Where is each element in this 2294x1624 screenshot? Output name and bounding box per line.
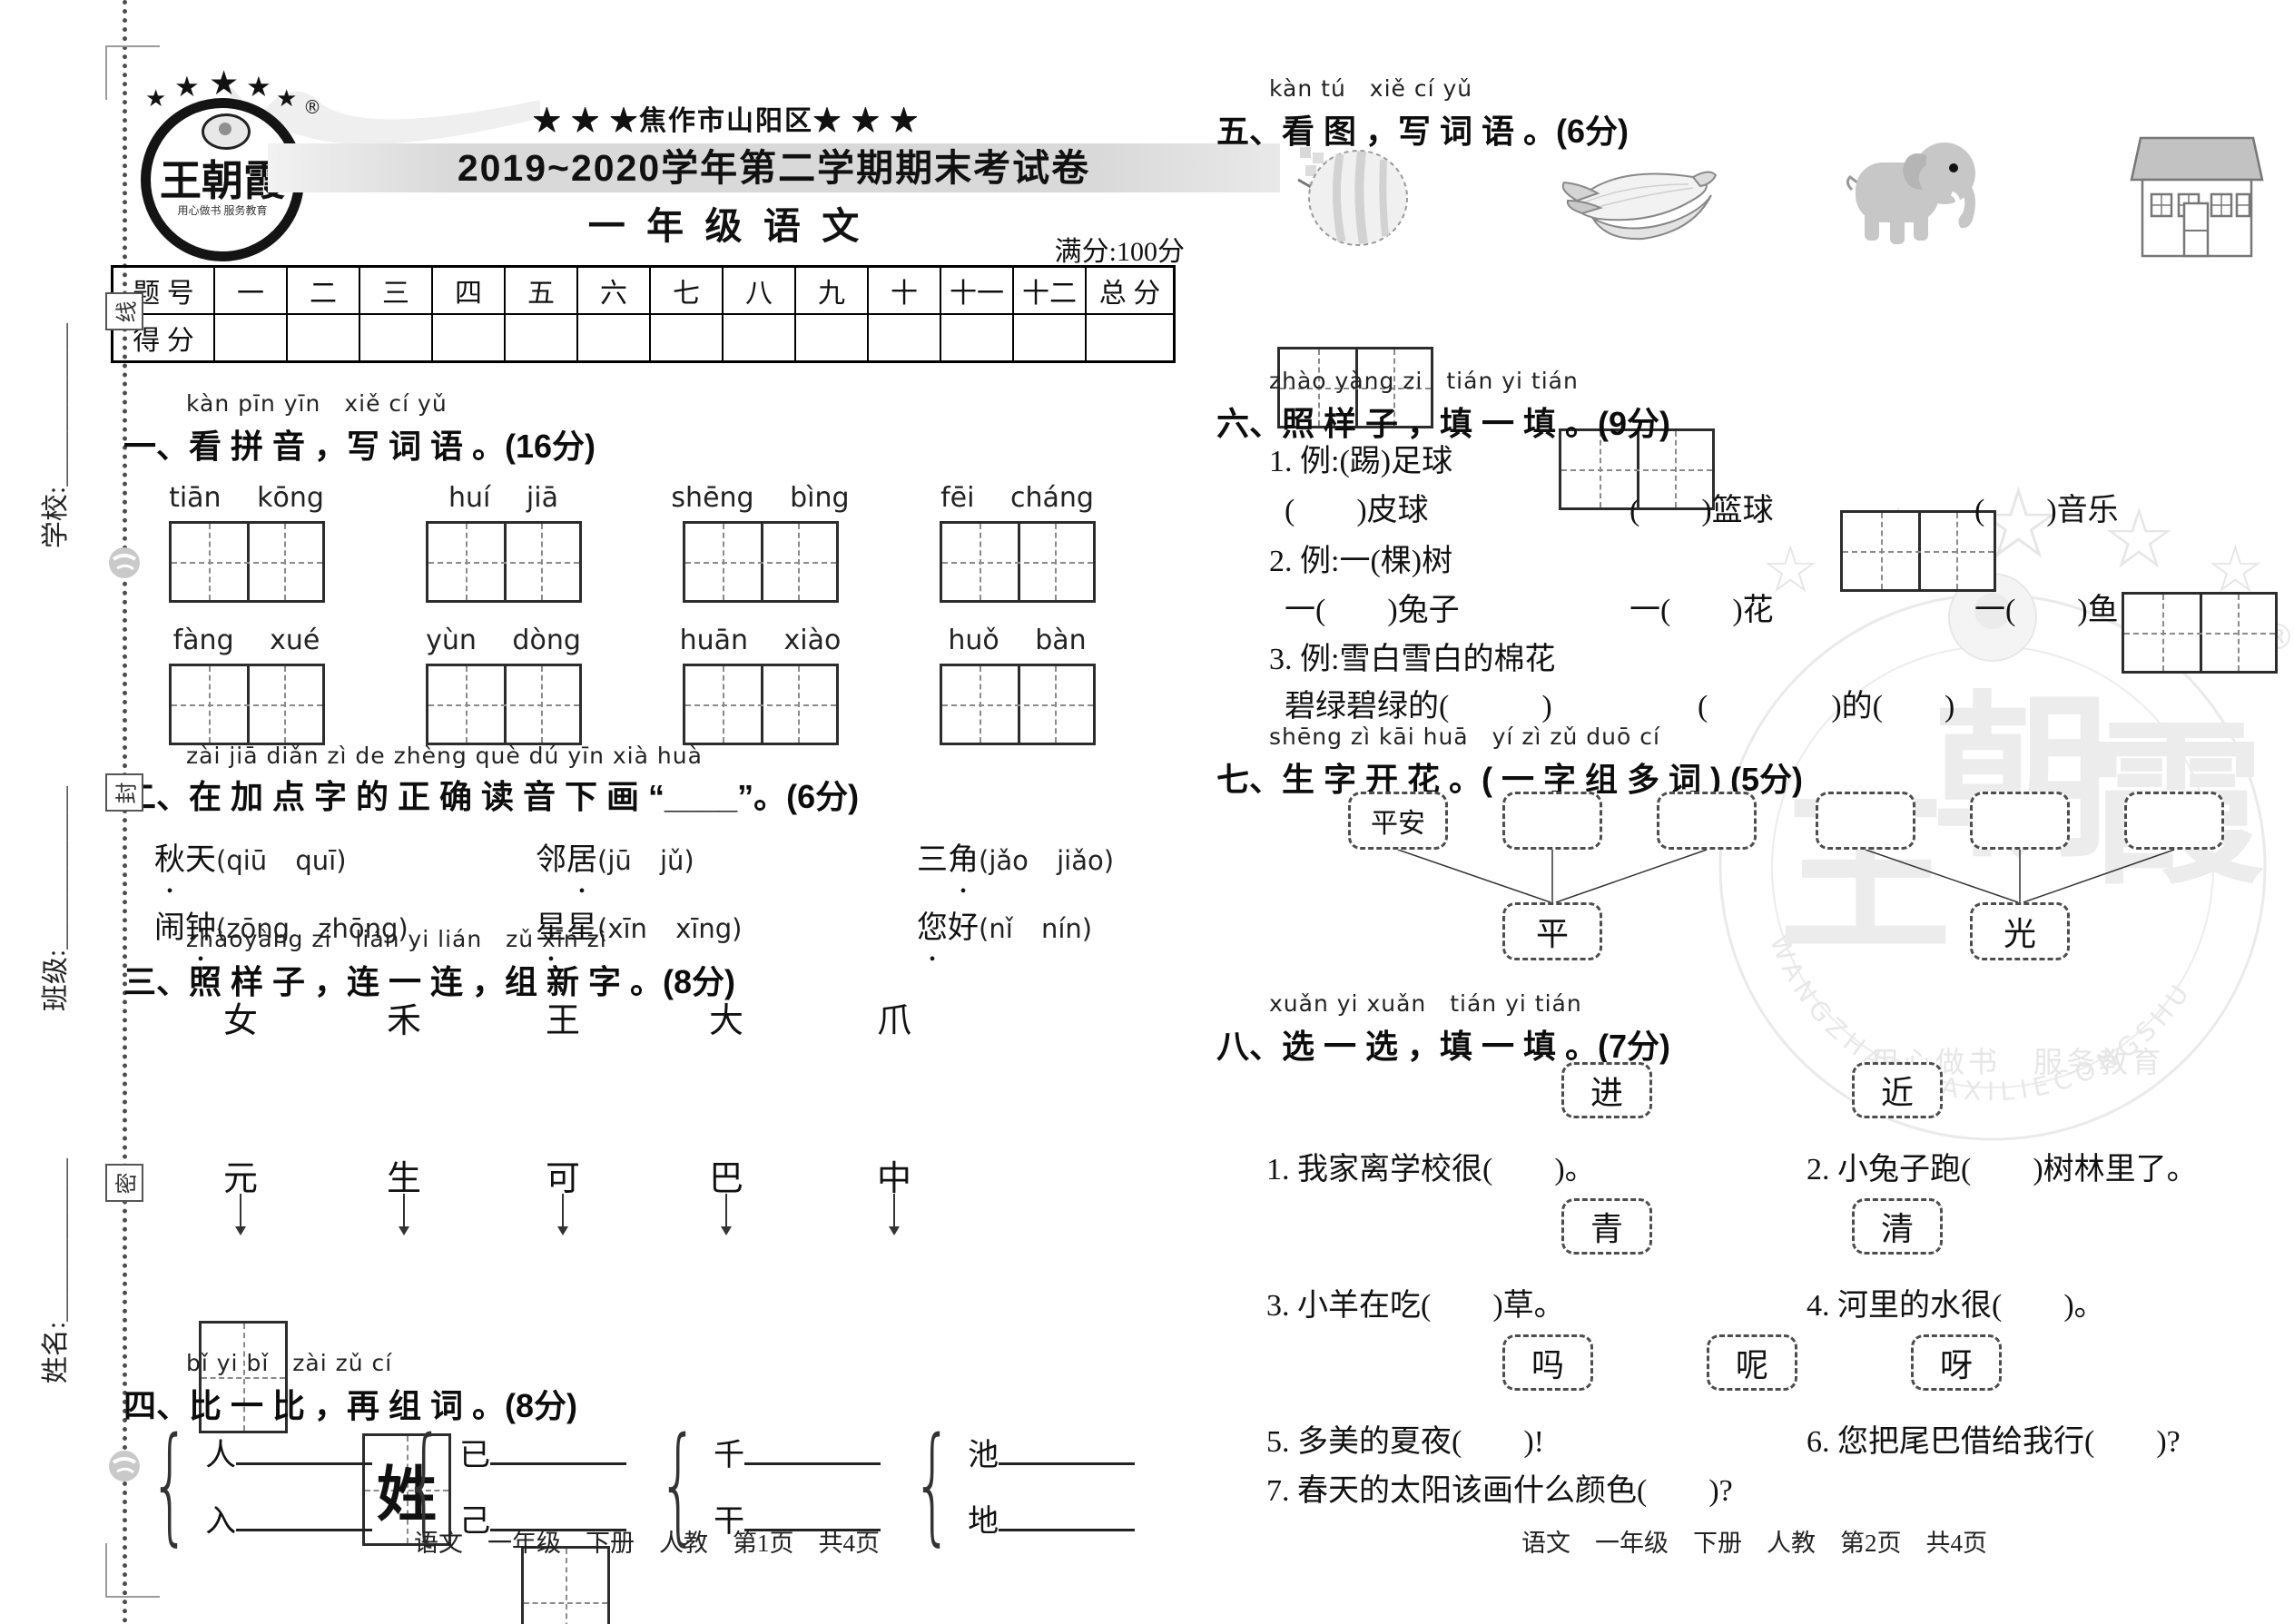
score-cell[interactable] (1014, 315, 1087, 360)
score-cell[interactable] (941, 315, 1014, 360)
page-2-footer: 语文 一年级 下册 人教 第2页 共4页 (1216, 1523, 2292, 1559)
seal-char-box: 封 (105, 773, 143, 812)
flower-word-box[interactable] (1816, 792, 1915, 850)
page-1: ★ ★ ★ ★ ★ 王朝霞 用心做书 服务教育 ® ★ ★ ★焦作市山阳区★ ★… (109, 0, 1185, 1624)
fill-blank-item[interactable]: ( )篮球 (1629, 485, 1774, 529)
choice-word-box[interactable]: 青 (1561, 1198, 1652, 1255)
word-pinyin: fēi cháng (940, 482, 1094, 514)
dotted-word-item[interactable]: 三角(jǎo jiǎo) (917, 834, 1185, 879)
writing-box-pair[interactable] (940, 521, 1096, 603)
flower-root-char: 光 (1970, 902, 2070, 960)
flower-root-char: 平 (1502, 902, 1602, 960)
component-char[interactable]: 生 (372, 1150, 436, 1200)
section-7-pinyin: shēng zì kāi huā yí zì zǔ duō cí (1269, 719, 2292, 752)
word-pinyin: huān xiào (680, 625, 842, 656)
score-cell[interactable] (578, 315, 651, 360)
score-cell[interactable] (215, 315, 288, 360)
corn-image (1557, 148, 1720, 252)
word-pinyin: huí jiā (448, 482, 558, 514)
exam-sheet: ☆ ☆ ☆ ☆ ☆ WANGZHAOXIAXILIECONGSHU 王 朝 霞 … (0, 0, 2294, 1624)
house-image (2124, 127, 2269, 259)
page-2: kàn tú xiě cí yǔ 五、看 图 ，写 词 语 。(6分) (1216, 0, 2292, 1624)
writing-box-pair[interactable] (426, 521, 582, 603)
fill-blank-item[interactable]: 一( )花 (1629, 585, 1774, 629)
section-4: bǐ yi bǐ zài zǔ cí 四、比 一 比 ，再 组 词 。(8分) … (109, 1345, 1185, 1518)
section-8: xuǎn yi xuǎn tián yi tián 八、选 一 选 ，填 一 填… (1216, 986, 2292, 1512)
seal-char-box: 线 (105, 292, 143, 330)
section-4-pinyin: bǐ yi bǐ zài zǔ cí (186, 1345, 1185, 1378)
writing-box-pair[interactable] (169, 521, 325, 603)
section-3-pinyin: zhàoyàng zi lián yi lián zǔ xīn zì (186, 921, 1185, 954)
component-char[interactable]: 巴 (694, 1150, 758, 1200)
fill-blank-item[interactable]: 一( )兔子 (1285, 585, 1460, 629)
class-field[interactable]: 班级:＿＿＿＿＿＿ (33, 786, 73, 1011)
fill-blank-item[interactable]: 一( )鱼 (1974, 585, 2119, 629)
section-3: zhàoyàng zi lián yi lián zǔ xīn zì 三、照 样… (109, 921, 1185, 1343)
sentence-item[interactable]: 1. 我家离学校很( )。 (1266, 1144, 1596, 1188)
example-line: 3. 例:雪白雪白的棉花 (1269, 634, 1555, 678)
sentence-item[interactable]: 6. 您把尾巴借给我行( )? (1807, 1416, 2181, 1461)
section-3-title: 三、照 样 子 ，连 一 连 ，组 新 字 。(8分) (123, 956, 1185, 1003)
choice-word-box[interactable]: 吗 (1502, 1334, 1593, 1391)
score-col: 十二 (1014, 268, 1087, 315)
compare-word-line[interactable]: 千 (714, 1430, 881, 1474)
word-pinyin: shēng bìng (671, 482, 849, 514)
score-col: 三 (360, 268, 433, 315)
compare-word-line[interactable]: 人 (205, 1430, 372, 1474)
choice-word-box[interactable]: 近 (1852, 1062, 1943, 1118)
down-arrow-icon (556, 1194, 569, 1235)
score-cell[interactable] (360, 315, 433, 360)
compare-word-line[interactable]: 池 (968, 1430, 1135, 1474)
section-2-pinyin: zài jiā diǎn zì de zhèng què dú yīn xià … (186, 743, 1185, 769)
component-char[interactable]: 爪 (862, 992, 926, 1042)
section-8-title: 八、选 一 选 ，填 一 填 。(7分) (1216, 1020, 2292, 1068)
dotted-word-item[interactable]: 秋天(qiū quī) (154, 834, 536, 879)
compare-word-line[interactable]: 已 (459, 1430, 626, 1474)
score-table: 题 号 一 二 三 四 五 六 七 八 九 十 十一 十二 总 分 得 分 (111, 265, 1176, 363)
sentence-item[interactable]: 2. 小兔子跑( )树林里了。 (1807, 1144, 2198, 1188)
section-8-pinyin: xuǎn yi xuǎn tián yi tián (1269, 986, 2292, 1019)
section-1-title: 一、看 拼 音 ，写 词 语 。(16分) (123, 420, 1185, 468)
component-char[interactable]: 大 (694, 992, 758, 1042)
score-cell[interactable] (288, 315, 360, 360)
watermelon-image (1296, 142, 1410, 251)
sentence-item[interactable]: 5. 多美的夏夜( )! (1266, 1416, 1544, 1461)
score-col: 总 分 (1087, 268, 1173, 315)
full-score-label: 满分:100分 (871, 229, 1185, 269)
word-pinyin: yùn dòng (426, 625, 581, 656)
component-char[interactable]: 王 (531, 992, 595, 1042)
fill-blank-item[interactable]: ( )皮球 (1285, 485, 1429, 529)
choice-word-box[interactable]: 呢 (1707, 1334, 1797, 1391)
sentence-item[interactable]: 4. 河里的水很( )。 (1807, 1280, 2105, 1324)
name-field[interactable]: 姓名:＿＿＿＿＿＿ (33, 1158, 73, 1383)
choice-word-box[interactable]: 呀 (1911, 1334, 2002, 1391)
down-arrow-icon (720, 1194, 733, 1235)
writing-box-pair[interactable] (426, 664, 582, 745)
writing-box-pair[interactable] (940, 664, 1096, 745)
component-char[interactable]: 女 (209, 992, 272, 1042)
component-char[interactable]: 可 (531, 1150, 595, 1200)
score-col: 九 (796, 268, 869, 315)
title-banner: 2019~2020学年第二学期期末考试卷 (268, 143, 1280, 192)
score-col: 二 (288, 268, 360, 315)
seal-char-box: 密 (105, 1164, 143, 1202)
writing-box-pair[interactable] (683, 664, 839, 745)
score-cell[interactable] (651, 315, 724, 360)
score-col: 十一 (941, 268, 1014, 315)
section-2-title: 二、在 加 点 字 的 正 确 读 音 下 画 “____”。(6分) (123, 771, 1185, 818)
star-icon: ★ (145, 85, 166, 113)
region-title: ★ ★ ★焦作市山阳区★ ★ ★ (318, 98, 1135, 138)
component-char[interactable]: 元 (209, 1150, 272, 1200)
score-col: 八 (724, 268, 796, 315)
flower-word-box[interactable] (1970, 792, 2070, 850)
star-icon: ★ (174, 71, 200, 103)
score-cell[interactable] (433, 315, 506, 360)
down-arrow-icon (234, 1194, 247, 1235)
score-cell[interactable] (506, 315, 578, 360)
page-1-footer: 语文 一年级 下册 人教 第1页 共4页 (109, 1523, 1185, 1559)
down-arrow-icon (888, 1194, 901, 1235)
score-cell[interactable] (724, 315, 796, 360)
score-cell[interactable] (869, 315, 941, 360)
component-char[interactable]: 中 (862, 1150, 926, 1200)
component-char[interactable]: 禾 (372, 992, 436, 1042)
score-col: 七 (651, 268, 724, 315)
fill-blank-item[interactable]: ( )音乐 (1974, 485, 2119, 529)
sentence-item[interactable]: 7. 春天的太阳该画什么颜色( )? (1266, 1465, 1733, 1510)
flower-word-box[interactable] (2124, 792, 2224, 850)
writing-box-pair[interactable] (169, 664, 325, 745)
score-col: 五 (506, 268, 578, 315)
word-pinyin: tiān kōng (169, 482, 324, 514)
dotted-word-item[interactable]: 邻居(jū jǔ) (536, 834, 917, 879)
flower-word-box[interactable] (1502, 792, 1602, 850)
score-cell[interactable] (796, 315, 869, 360)
section-5-pinyin: kàn tú xiě cí yǔ (1269, 71, 2292, 103)
example-line: 1. 例:(踢)足球 (1269, 436, 1452, 480)
section-6-pinyin: zhào yàng zi tián yi tián (1269, 363, 2292, 396)
score-col: 一 (215, 268, 288, 315)
sentence-item[interactable]: 3. 小羊在吃( )草。 (1266, 1280, 1565, 1324)
exam-title: 2019~2020学年第二学期期末考试卷 (268, 143, 1280, 192)
section-6: zhào yàng zi tián yi tián 六、照 样 子 ，填 一 填… (1216, 363, 2292, 717)
star-icon: ★ (246, 71, 271, 103)
choice-word-box[interactable]: 清 (1852, 1198, 1943, 1255)
flower-connector-lines (1216, 850, 2292, 902)
down-arrow-icon (398, 1194, 410, 1235)
section-1: kàn pīn yīn xiě cí yǔ 一、看 拼 音 ，写 词 语 。(1… (109, 386, 1185, 745)
word-pinyin: fàng xué (173, 625, 320, 656)
writing-box-pair[interactable] (683, 521, 839, 603)
score-cell[interactable] (1087, 315, 1173, 360)
logo-tagline: 用心做书 服务教育 (151, 202, 294, 218)
section-1-pinyin: kàn pīn yīn xiě cí yǔ (186, 386, 1185, 418)
word-pinyin: huǒ bàn (948, 625, 1086, 656)
flower-word-box[interactable] (1657, 792, 1757, 850)
school-field[interactable]: 学校:＿＿＿＿＿＿ (33, 323, 73, 548)
choice-word-box[interactable]: 进 (1561, 1062, 1652, 1118)
section-7: shēng zì kāi huā yí zì zǔ duō cí 七、生 字 开… (1216, 719, 2292, 973)
score-col: 六 (578, 268, 651, 315)
example-line: 2. 例:一(棵)树 (1269, 536, 1452, 580)
section-2: zài jiā diǎn zì de zhèng què dú yīn xià … (109, 743, 1185, 947)
flower-word-box-example: 平安 (1348, 792, 1448, 850)
portrait-icon (202, 113, 251, 150)
score-col: 四 (433, 268, 506, 315)
score-col: 十 (869, 268, 941, 315)
star-icon: ★ (276, 85, 297, 113)
section-4-title: 四、比 一 比 ，再 组 词 。(8分) (123, 1380, 1185, 1427)
elephant-image (1843, 130, 1993, 257)
